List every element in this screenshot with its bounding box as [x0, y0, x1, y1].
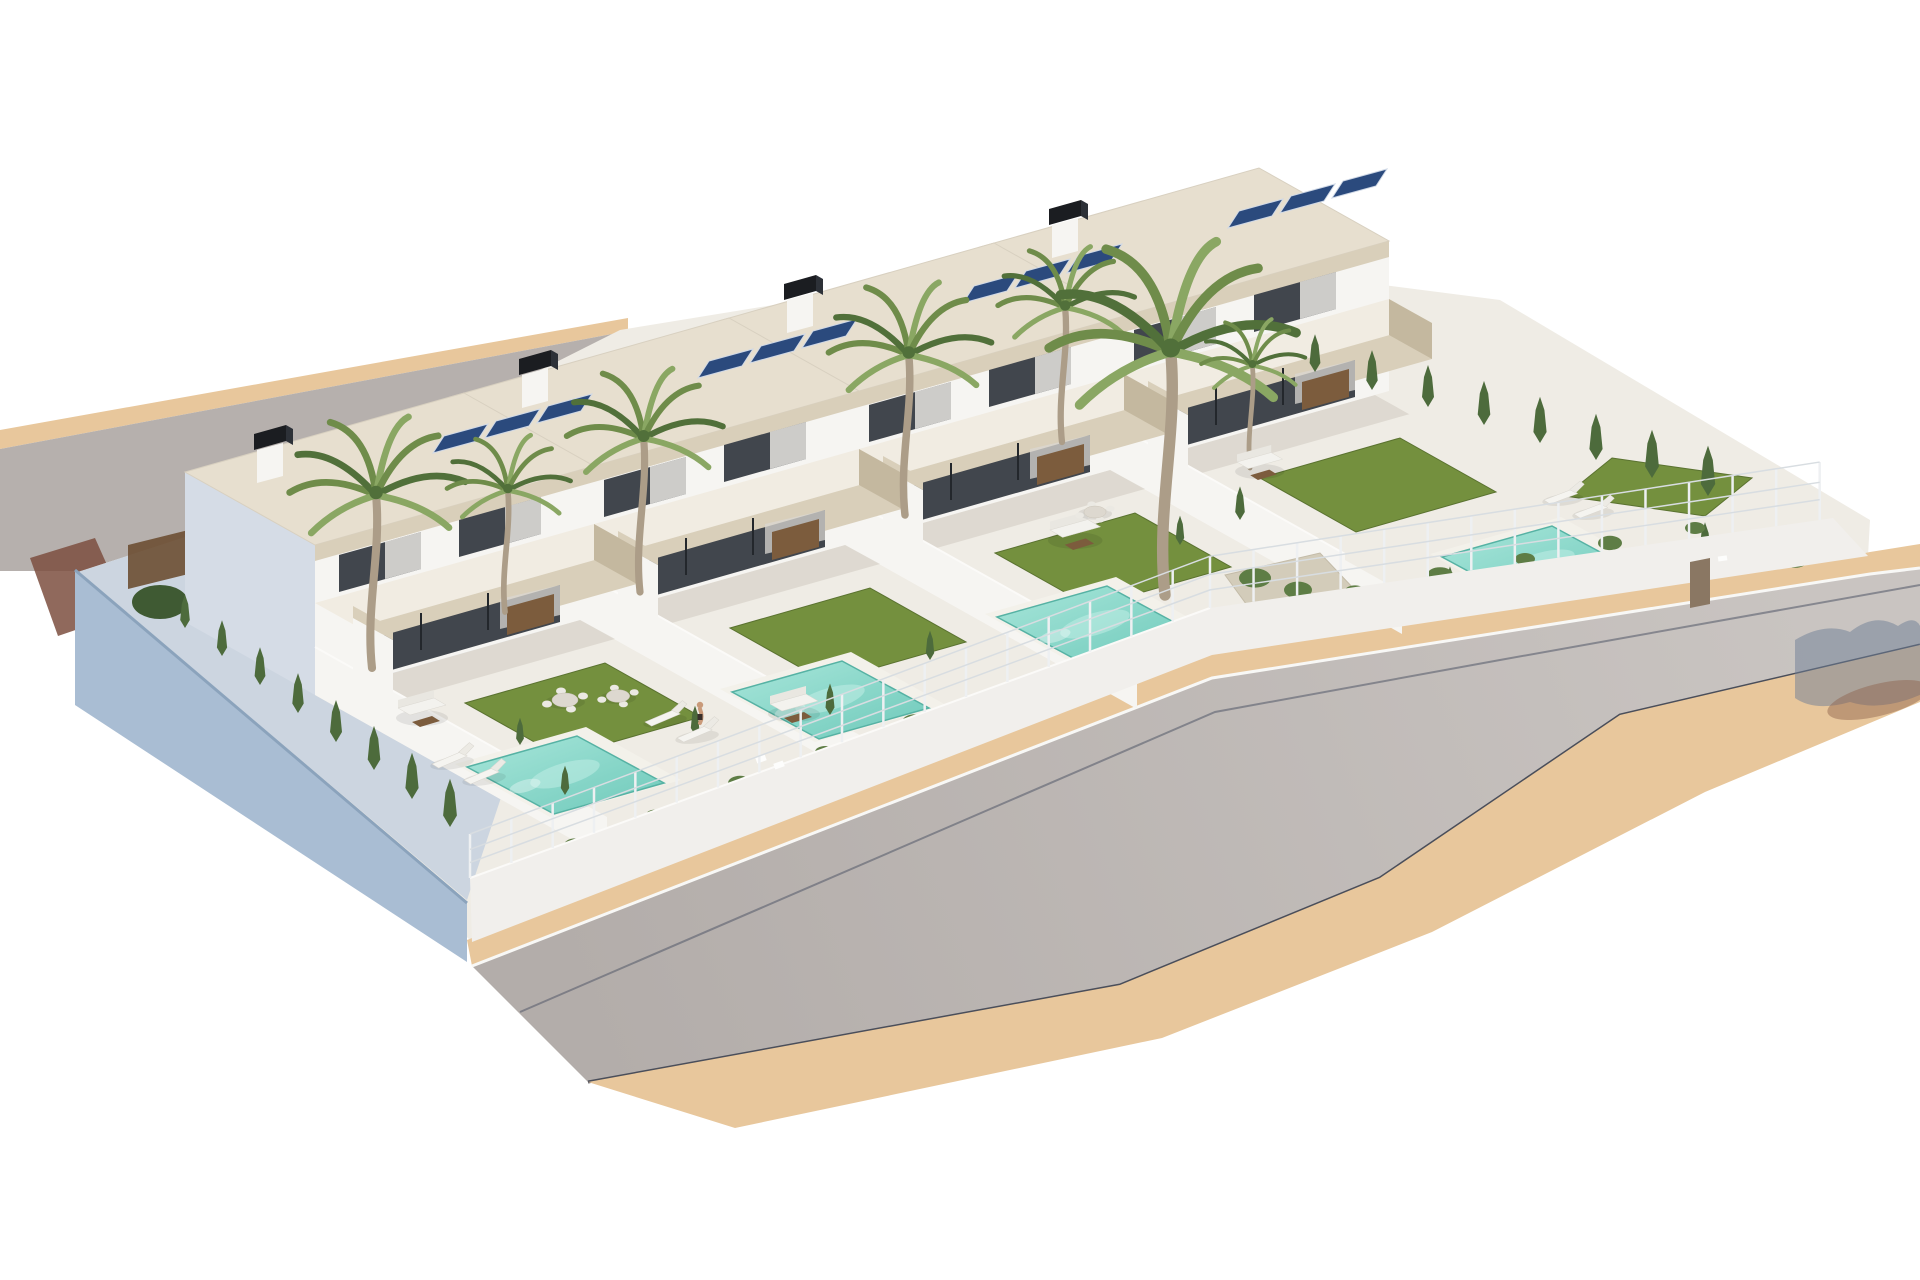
villa-development-render	[0, 0, 1920, 1280]
render-canvas	[0, 0, 1920, 1280]
pedestrian-gate-door	[1690, 558, 1710, 608]
rear-garden-bush	[132, 585, 188, 619]
